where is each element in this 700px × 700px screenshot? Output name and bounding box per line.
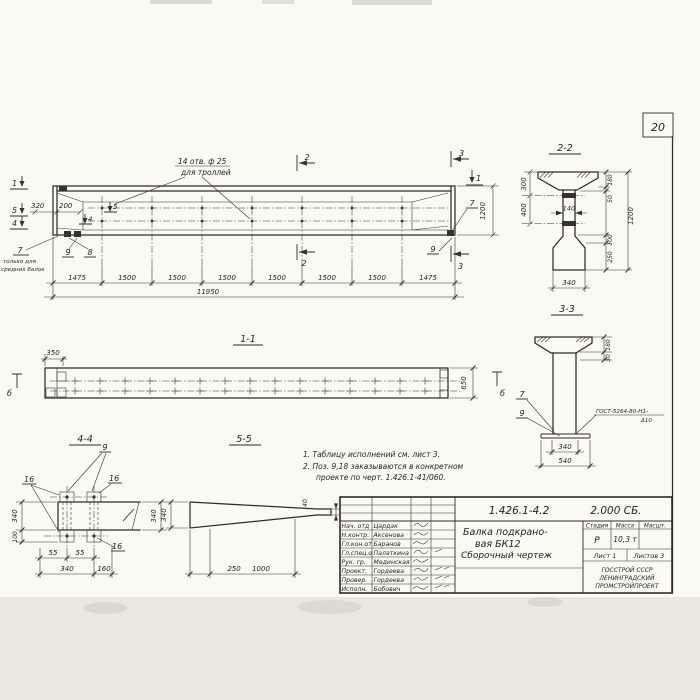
footnote: средних балок <box>1 267 45 273</box>
callout-label: 9 <box>102 443 107 452</box>
dim-label: 340 <box>160 508 168 522</box>
dim-label: 1200 <box>479 202 487 220</box>
staff-role: Н.контр. <box>342 532 370 539</box>
callout-label: 9 <box>430 245 435 254</box>
callout-label: 16 <box>109 474 119 483</box>
staff-role: Исполн. <box>342 586 368 593</box>
callout-label: 16 <box>24 475 34 484</box>
holes-label: для троллей <box>180 168 231 177</box>
view-mark-label: 1 <box>12 179 17 188</box>
section-mark-3-bottom: 3 <box>451 246 469 271</box>
bottom-dim-chain: 1475 1500 1500 1500 1500 1500 1500 1475 … <box>44 237 464 300</box>
section-mark-label: 3 <box>458 262 463 271</box>
dim-label: 1500 <box>368 274 386 282</box>
dim-label-total: 11950 <box>197 288 220 296</box>
callout-8-left: 8 <box>69 238 96 257</box>
dim-label: 650 <box>460 376 468 390</box>
staff-name: Гордеева <box>374 568 405 575</box>
staff-role: Проект. <box>342 568 368 575</box>
dim-label: 250 <box>607 251 614 263</box>
callout-label: 7 <box>17 246 23 255</box>
dim-label: 1000 <box>252 565 270 573</box>
dim-label: 30 <box>605 354 612 362</box>
section-3-3: 3-3 180 30 7 9 ГОСТ-5264-80-Н1- Δ10 340 … <box>516 304 664 469</box>
note-line: проекте по черт. 1.426.1-41/060. <box>316 473 446 482</box>
scan-artifacts <box>0 0 700 700</box>
section-mark-2-bottom: 2 <box>297 244 315 268</box>
section-title: 2-2 <box>557 143 573 154</box>
holes-label: 14 отв. ф 25 <box>178 157 227 166</box>
dim-label: 1500 <box>218 274 236 282</box>
org-name: ЛЕНИНГРАДСКИЙ <box>599 575 656 582</box>
stage-value: Р <box>594 536 600 546</box>
section-4-4: 4-4 9 16 16 16 340 100 <box>11 434 167 578</box>
stage-header: Стадия <box>586 524 609 530</box>
dim-label: 340 <box>11 509 19 523</box>
dim-label: 100 <box>607 234 614 246</box>
callout-label: 8 <box>87 248 92 257</box>
dim-label: 55 <box>49 549 58 557</box>
blueprint-canvas: 20 14 отв. ф 25 для троллей <box>0 0 700 700</box>
dim-label: 340 <box>60 565 74 573</box>
dim-label: 1500 <box>168 274 186 282</box>
scale-header: Масшт. <box>644 524 666 530</box>
staff-name: Цардак <box>374 523 399 530</box>
dim-label: 1475 <box>68 274 86 282</box>
dim-label: 140 <box>563 205 575 213</box>
dim-label: 1500 <box>118 274 136 282</box>
drawing-title: Балка подкрано- <box>463 527 548 538</box>
section-mark-1-right: 1 <box>466 170 483 185</box>
view-mark-label: 4 <box>12 219 17 228</box>
callout-9-right: 9 <box>427 238 452 254</box>
end-clamp-plate <box>74 231 81 237</box>
end-clamp-plate <box>64 231 71 237</box>
callout-9-left: 9 <box>62 238 77 257</box>
staff-name: Мединская <box>374 559 410 566</box>
dim-label: 40 <box>302 499 309 507</box>
dim-label: 200 <box>59 202 73 210</box>
section-mark-label: 2 <box>304 153 309 162</box>
dim-label: 340 <box>150 509 158 523</box>
dim-label: 540 <box>558 457 572 465</box>
staff-role: Нач. отд <box>342 523 370 530</box>
section-mark-5: 5 <box>104 202 118 212</box>
section-mark-label: 5 <box>113 203 118 211</box>
callout-label: 9 <box>519 409 524 418</box>
staff-name: Палаткина <box>374 550 410 557</box>
staff-name: Гордеева <box>374 577 405 584</box>
section-title: 3-3 <box>559 304 575 315</box>
title-block-staff-grid: Нач. отд Цардак Н.контр. Аксенова Гл.кон… <box>342 523 410 593</box>
staff-name: Аксенова <box>373 532 405 539</box>
section-mark-label: 1 <box>476 174 481 183</box>
mass-value: 10,3 т <box>613 535 637 544</box>
dim-label: 100 <box>12 531 19 543</box>
dim-label: 180 <box>605 339 612 351</box>
main-elevation-view: 14 отв. ф 25 для троллей 320 200 5 4 2 <box>1 149 499 300</box>
org-name: ПРОМСТРОЙПРОЕКТ <box>595 583 660 590</box>
dim-label: 340 <box>558 443 572 451</box>
weld-note: ГОСТ-5264-80-Н1- Δ10 <box>577 409 664 433</box>
callout-7-right: 7 <box>452 199 478 231</box>
staff-role: Гл.кон.от <box>342 541 373 548</box>
holes-callout: 14 отв. ф 25 для троллей <box>115 157 250 219</box>
section-mark-4: 4 <box>79 214 92 224</box>
callout-label: 9 <box>65 248 70 257</box>
section-title: 4-4 <box>77 434 93 445</box>
staff-role: Рук. гр. <box>342 559 366 566</box>
view-mark-b-left: б <box>7 374 22 398</box>
dim-1200-right: 1200 <box>457 184 499 238</box>
note-line: 2. Поз. 9,18 заказываются в конкретном <box>303 462 464 471</box>
dim-label: 55 <box>76 549 85 557</box>
sheet-info: Лист 1 <box>593 552 617 560</box>
section-mark-label: 3 <box>459 149 464 158</box>
dim-label: 1475 <box>419 274 437 282</box>
footnote: только для <box>3 259 37 265</box>
callout-7-left: 7 только для средних балок <box>1 236 58 273</box>
left-edge-view-marks: 1 5 4 <box>10 176 28 229</box>
note-line: 1. Таблицу исполнений см. лист 3. <box>303 450 440 459</box>
mass-header: Масса <box>616 524 635 530</box>
dim-label: 340 <box>562 279 576 287</box>
drawing-sheet: 20 14 отв. ф 25 для троллей <box>0 0 700 700</box>
staff-role: Гл.спец.о <box>342 550 373 557</box>
dim-label: 1500 <box>318 274 336 282</box>
dim-label: 50 <box>607 195 614 203</box>
dim-label: 400 <box>520 203 528 217</box>
section-title: 5-5 <box>236 434 252 445</box>
notes: 1. Таблицу исполнений см. лист 3. 2. Поз… <box>303 450 464 482</box>
dim-label: 180 <box>607 174 614 186</box>
staff-name: Бобович <box>374 585 401 593</box>
sheets-info: Листов 3 <box>633 552 664 560</box>
section-mark-label: 4 <box>88 216 92 224</box>
view-mark-label: 5 <box>12 206 17 215</box>
doc-code: 2.000 СБ. <box>590 505 641 517</box>
section-1-1: 1-1 350 650 б б <box>7 334 505 401</box>
section-mark-2-top: 2 <box>297 153 315 171</box>
dim-label: 1500 <box>268 274 286 282</box>
weld-spec: Δ10 <box>640 418 652 424</box>
view-mark-b-right: б <box>492 372 505 398</box>
callout-label: 7 <box>519 390 525 399</box>
section-2-2: 2-2 300 400 140 180 50 100 250 1200 340 <box>520 143 635 292</box>
dim-label: 1200 <box>627 207 635 225</box>
dim-label: 300 <box>520 177 528 191</box>
section-title: 1-1 <box>240 334 256 345</box>
dim-label: 250 <box>227 565 241 573</box>
title-block: 1.426.1-4.2 2.000 СБ. Балка подкрано- ва… <box>340 497 672 593</box>
staff-name: Баранов <box>374 541 402 548</box>
doc-number: 1.426.1-4.2 <box>489 505 550 517</box>
left-end-dims: 320 200 <box>30 202 83 215</box>
dim-label: 160 <box>97 565 111 573</box>
drawing-title: вая БК12 <box>475 539 521 550</box>
rail-clamp <box>59 186 67 191</box>
callout-label: 7 <box>469 199 475 208</box>
view-mark-label: б <box>500 389 505 398</box>
weld-spec: ГОСТ-5264-80-Н1- <box>596 409 648 415</box>
view-mark-label: б <box>7 389 12 398</box>
staff-role: Провер. <box>342 577 368 584</box>
dim-label: 320 <box>31 202 45 210</box>
org-name: ГОССТРОЙ СССР <box>601 567 652 574</box>
dim-label: 350 <box>46 349 60 357</box>
sheet-number: 20 <box>651 121 665 134</box>
end-clamp-plate <box>447 230 454 236</box>
section-mark-3-top: 3 <box>451 149 469 167</box>
drawing-subtitle: Сборочный чертеж <box>461 551 553 561</box>
